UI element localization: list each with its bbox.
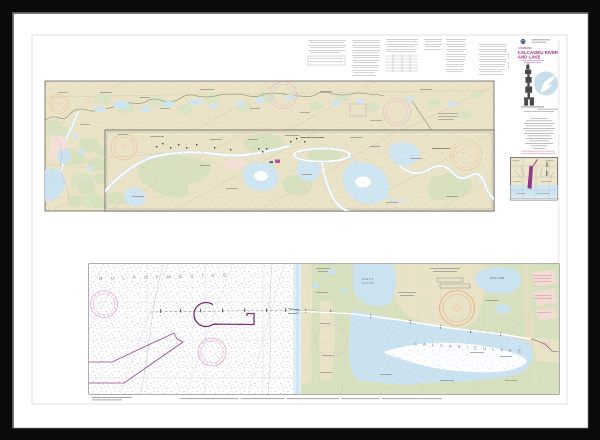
svg-text:COVE: COVE <box>362 281 375 285</box>
svg-text:MUD LAKE: MUD LAKE <box>490 276 504 280</box>
svg-text:AND LAKE: AND LAKE <box>518 54 541 59</box>
